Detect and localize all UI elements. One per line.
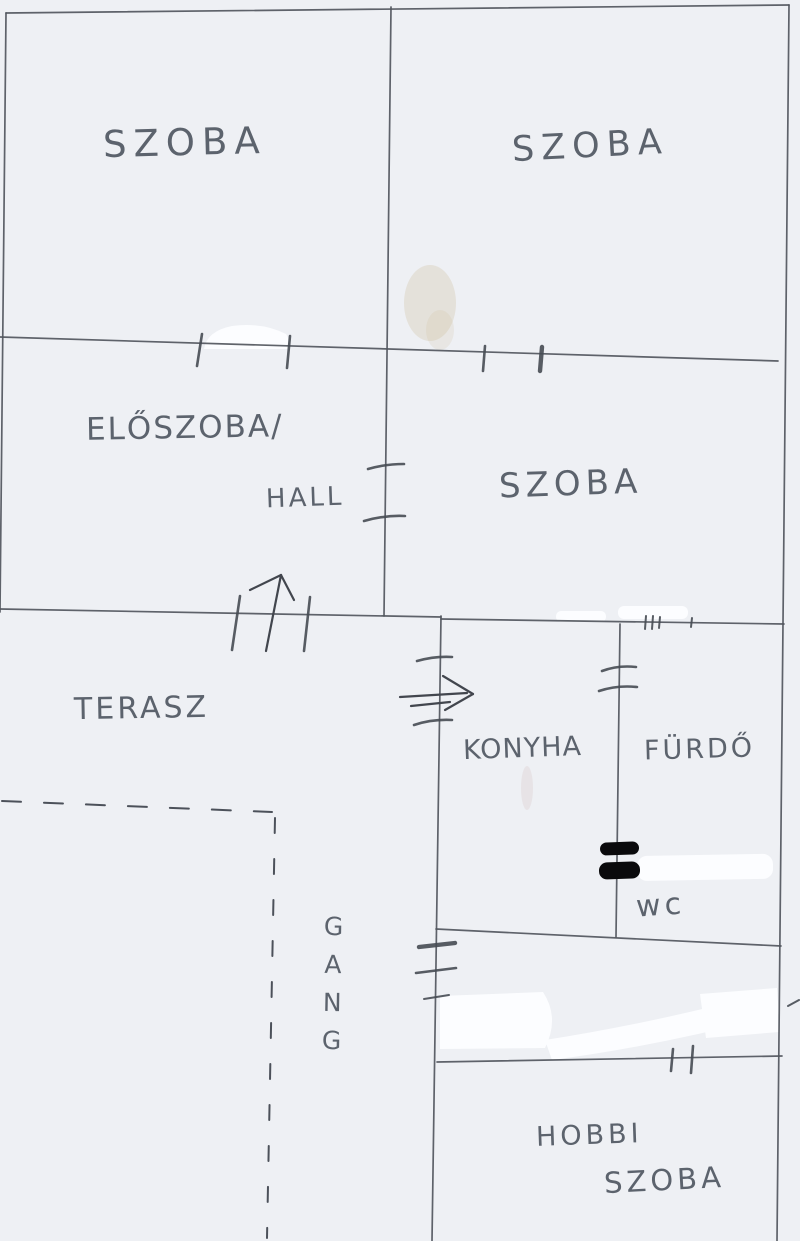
wall-mark bbox=[659, 617, 660, 628]
room-label-konyha: KONYHA bbox=[462, 731, 582, 766]
wall-middle-szoba-bottom bbox=[441, 619, 784, 624]
entry-arrow-shaft bbox=[266, 575, 281, 651]
door-tick bbox=[599, 687, 637, 692]
wall-top bbox=[6, 5, 789, 13]
paper-smudge bbox=[426, 310, 454, 350]
door-tick bbox=[671, 1049, 673, 1071]
entry-arrow-wing bbox=[281, 575, 294, 600]
room-label-szoba-top-left: SZOBA bbox=[102, 119, 267, 166]
floor-plan-drawing bbox=[0, 0, 800, 1241]
wall-hall-bottom bbox=[0, 609, 441, 617]
door-tick bbox=[232, 596, 240, 650]
wall-mark bbox=[691, 618, 692, 627]
wall-left bbox=[0, 13, 6, 612]
wall-horizontal-upper bbox=[0, 337, 778, 361]
room-label-hobbi-line1: HOBBI bbox=[535, 1118, 643, 1153]
room-label-szoba-middle: SZOBA bbox=[498, 462, 643, 507]
paper-smudge bbox=[521, 766, 533, 810]
wall-hobbi-top bbox=[437, 1056, 782, 1062]
entry-arrow-wing bbox=[250, 575, 281, 590]
room-label-terasz: TERASZ bbox=[74, 690, 210, 727]
whiteout-patch bbox=[700, 988, 779, 1038]
room-label-hobbi-line2: SZOBA bbox=[603, 1160, 725, 1200]
door-tick bbox=[691, 1046, 693, 1073]
dashed-terasz-edge-horizontal bbox=[2, 801, 272, 812]
door-tick bbox=[414, 720, 452, 725]
door-tick bbox=[197, 334, 202, 366]
door-tick bbox=[417, 657, 452, 661]
whiteout-patch bbox=[637, 854, 773, 881]
kitchen-arrow-shaft bbox=[400, 693, 467, 697]
kitchen-arrow-underline bbox=[411, 702, 450, 706]
whiteout-patch bbox=[440, 992, 552, 1049]
room-label-eloszoba: ELŐSZOBA/ bbox=[86, 408, 284, 447]
wall-mark bbox=[788, 1000, 799, 1006]
wall-konyha-furdo-divider bbox=[616, 624, 620, 937]
wall-mark bbox=[652, 616, 653, 629]
room-label-furdo: FÜRDŐ bbox=[644, 733, 756, 767]
room-label-hall: HALL bbox=[266, 482, 345, 515]
dashed-gang-edge-vertical bbox=[267, 818, 275, 1238]
redaction-bar bbox=[599, 861, 641, 879]
wall-mark bbox=[645, 616, 646, 629]
kitchen-door-arrow-icon bbox=[400, 676, 473, 710]
room-label-wc: wc bbox=[635, 886, 686, 924]
room-label-gang: GANG bbox=[317, 912, 349, 1064]
kitchen-arrow-wing bbox=[443, 676, 473, 694]
door-tick bbox=[304, 597, 310, 651]
floor-plan-scan: SZOBA SZOBA ELŐSZOBA/ HALL SZOBA TERASZ … bbox=[0, 0, 800, 1241]
door-tick bbox=[483, 346, 485, 371]
wall-divider-top-rooms-and-hall bbox=[384, 7, 391, 616]
room-label-szoba-top-right: SZOBA bbox=[511, 122, 670, 170]
door-tick bbox=[419, 943, 455, 947]
redaction-bar bbox=[600, 841, 639, 855]
wall-wet-rooms-bottom bbox=[436, 929, 781, 946]
door-tick bbox=[540, 347, 542, 371]
